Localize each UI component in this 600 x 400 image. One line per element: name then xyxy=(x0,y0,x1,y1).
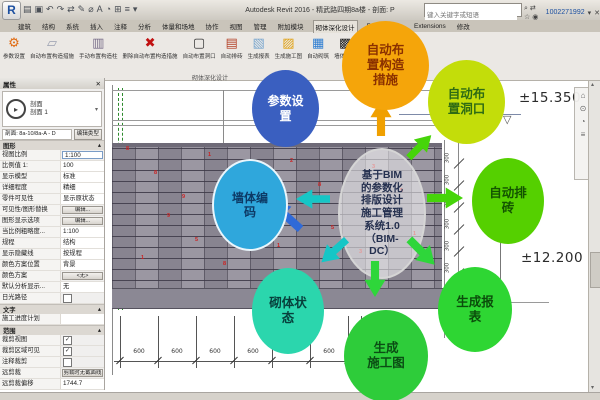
bubble-label: 自动布 置构造 措施 xyxy=(367,43,405,88)
brick-number: 9 xyxy=(182,194,185,200)
tab-视图[interactable]: 视图 xyxy=(228,20,245,32)
steering-wheel-icon[interactable]: ⊙ xyxy=(580,104,587,113)
thin-lines-icon[interactable]: ≡ xyxy=(125,2,130,17)
dimension-value[interactable]: 600 xyxy=(158,348,196,355)
ribbon-button-自动排砖[interactable]: ▤自动排砖 xyxy=(220,34,244,61)
tab-建筑[interactable]: 建筑 xyxy=(16,20,33,32)
property-label: 裁剪区域可见 xyxy=(0,346,61,356)
property-label: 远剪裁 xyxy=(0,368,61,378)
tab-协作[interactable]: 协作 xyxy=(204,20,221,32)
bubble-label: 自动排 砖 xyxy=(489,186,527,216)
ribbon-button-label: 生成施工图 xyxy=(275,52,303,60)
dimension-value[interactable]: 600 xyxy=(234,348,272,355)
brick-number: 9 xyxy=(167,213,170,219)
bubble-wall-coding: 墙体编 码 xyxy=(212,159,288,251)
property-row-远剪裁偏移: 远剪裁偏移1744.7 xyxy=(0,379,104,390)
delete-icon: ✖ xyxy=(145,35,156,51)
dimension-value[interactable]: 600 xyxy=(310,348,348,355)
ribbon-button-label: 自动布置洞口 xyxy=(183,52,216,60)
brick-number: 1 xyxy=(208,152,211,158)
ribbon-button-生成施工图[interactable]: ▨生成施工图 xyxy=(274,34,304,61)
revit-window: R ▤▣↶↷⇄✎⌀A◔⊞≡▾ Autodesk Revit 2016 - 精武路… xyxy=(0,0,600,400)
dimension-value[interactable]: 600 xyxy=(196,348,234,355)
hub-label: 基于BIM 的参数化 排版设计 施工管理 系统1.0 （BIM- DC） xyxy=(361,169,403,259)
property-row-规程: 规程结构 xyxy=(0,238,104,249)
chevron-down-icon[interactable]: ▾ xyxy=(95,106,98,113)
ribbon-button-自动砌筑[interactable]: ▦自动砌筑 xyxy=(306,34,330,61)
element-filter-dropdown[interactable]: 剖面: 8a-10/8a-A - D xyxy=(2,129,72,140)
title-bar: R ▤▣↶↷⇄✎⌀A◔⊞≡▾ Autodesk Revit 2016 - 精武路… xyxy=(0,0,600,21)
drawing-icon: ▨ xyxy=(282,35,294,51)
revit-logo-icon[interactable]: R xyxy=(2,1,21,20)
property-value[interactable] xyxy=(63,358,72,367)
titlebar-tools: ⌕ ⇄ ☆ ◉ xyxy=(524,4,543,21)
report-icon: ▧ xyxy=(252,35,264,51)
spot-elevation-icon: ▽ xyxy=(503,113,511,126)
type-name: 剖面 1 xyxy=(30,109,48,117)
property-label: 当比例粗略度... xyxy=(0,227,61,237)
wall-edge-line xyxy=(223,90,224,143)
section-symbol-icon: ▸ xyxy=(6,99,26,119)
properties-section-文字[interactable]: 文字▴ xyxy=(0,304,104,314)
column-icon: ▥ xyxy=(92,35,104,51)
menu-icon[interactable]: ≡ xyxy=(581,130,586,139)
ribbon-tabs: 建筑结构系统插入注释分析体量和场地协作视图管理附加模块砌体深化设计Fuzor P… xyxy=(0,20,600,32)
property-label: 远剪裁偏移 xyxy=(0,379,61,389)
property-value[interactable]: 编辑... xyxy=(62,206,103,214)
property-row-当比例粗略度...: 当比例粗略度...1:100 xyxy=(0,227,104,238)
property-label: 日光路径 xyxy=(0,293,61,303)
bubble-generate-shop-drawings: 生成 施工图 xyxy=(344,310,428,400)
save-icon[interactable]: ▣ xyxy=(35,2,44,17)
ribbon-button-label: 手动布置构造柱 xyxy=(79,52,118,60)
property-row-日光路径: 日光路径 xyxy=(0,293,104,304)
property-label: 默认分析显示... xyxy=(0,282,61,292)
brick-number: 5 xyxy=(331,225,334,231)
property-label: 规程 xyxy=(0,238,61,248)
dimension-value[interactable]: 300 xyxy=(444,241,450,252)
property-label: 施工进度计划 xyxy=(0,314,61,324)
ribbon-button-label: 自动砌筑 xyxy=(307,52,329,60)
property-row-零件可见性: 零件可见性显示原状态 xyxy=(0,194,104,205)
property-value[interactable]: 100 xyxy=(61,161,104,171)
property-row-显示隐藏线: 显示隐藏线按规程 xyxy=(0,249,104,260)
property-row-可见性/图形替换: 可见性/图形替换编辑... xyxy=(0,205,104,216)
property-value[interactable]: 精细 xyxy=(61,183,104,193)
bubble-label: 参数设 置 xyxy=(267,94,303,123)
tab-Extensions[interactable]: Extensions xyxy=(412,22,448,31)
tab-体量和场地[interactable]: 体量和场地 xyxy=(160,20,197,32)
type-category: 剖面 xyxy=(30,101,48,109)
brick-number: 8 xyxy=(154,170,157,176)
tab-管理[interactable]: 管理 xyxy=(252,20,269,32)
opening-icon: ▢ xyxy=(193,35,205,51)
property-value[interactable] xyxy=(61,314,104,324)
brick-number: 1 xyxy=(277,243,280,249)
edit-type-button[interactable]: 编辑类型 xyxy=(74,129,102,140)
ribbon-button-参数设置[interactable]: ⚙参数设置 xyxy=(2,34,26,61)
ribbon-button-生成报表[interactable]: ▧生成报表 xyxy=(247,34,271,61)
masonry-icon: ▦ xyxy=(312,35,324,51)
property-value[interactable]: ✓ xyxy=(63,336,72,345)
tab-注释[interactable]: 注释 xyxy=(112,20,129,32)
undo-icon[interactable]: ↶ xyxy=(46,2,54,17)
scroll-down-icon[interactable]: ▾ xyxy=(591,384,594,391)
bubble-label: 生成 施工图 xyxy=(367,341,405,371)
property-row-图形显示选项: 图形显示选项编辑... xyxy=(0,216,104,227)
bubble-label: 砌体状 态 xyxy=(269,296,307,326)
print-icon[interactable]: ⇄ xyxy=(67,2,75,17)
property-value[interactable]: 1:100 xyxy=(62,151,103,159)
property-label: 注释裁剪 xyxy=(0,357,61,367)
brick-number: 8 xyxy=(318,182,321,188)
property-label: 详细程度 xyxy=(0,183,61,193)
brick-number: 8 xyxy=(223,261,226,267)
elevation-annotation[interactable]: ±12.200 xyxy=(521,250,583,266)
bubble-label: 自动布 置洞口 xyxy=(448,87,486,117)
property-row-默认分析显示...: 默认分析显示...无 xyxy=(0,282,104,293)
property-value[interactable]: 按规程 xyxy=(61,249,104,259)
quick-access-toolbar: ▤▣↶↷⇄✎⌀A◔⊞≡▾ xyxy=(23,2,137,17)
bubble-auto-construction-measures: 自动布 置构造 措施 xyxy=(342,21,429,110)
gear-icon: ⚙ xyxy=(8,35,20,51)
customize-icon[interactable]: ▾ xyxy=(133,2,138,17)
dim-tick xyxy=(454,180,465,191)
ribbon-button-label: 参数设置 xyxy=(3,52,25,60)
bubble-generate-reports: 生成报 表 xyxy=(438,267,512,352)
tab-结构[interactable]: 结构 xyxy=(40,20,57,32)
dimension-value[interactable]: 300 xyxy=(444,219,450,230)
brick-number: 5 xyxy=(195,237,198,243)
bubble-auto-brick-layout: 自动排 砖 xyxy=(472,158,544,244)
property-label: 零件可见性 xyxy=(0,194,61,204)
vertical-scrollbar[interactable]: ▴ ▾ xyxy=(588,80,600,392)
property-label: 图形显示选项 xyxy=(0,216,61,226)
account-id[interactable]: 1002271992 xyxy=(546,9,585,16)
property-value[interactable]: 1:100 xyxy=(61,227,104,237)
ribbon-button-label: 删除自动布置构造措施 xyxy=(123,52,178,60)
modify-icon[interactable]: ✎ xyxy=(78,2,86,17)
bubble-masonry-status: 砌体状 态 xyxy=(252,268,324,354)
dimension-value[interactable]: 600 xyxy=(120,348,158,355)
bubble-auto-openings: 自动布 置洞口 xyxy=(428,60,505,144)
property-value[interactable]: 剪裁时无截面线 xyxy=(62,369,103,377)
dimension-value[interactable]: 300 xyxy=(444,175,450,186)
properties-panel: 属性 ✕ ▸ 剖面 剖面 1 ▾ 剖面: 8a-10/8a-A - D 编辑类型… xyxy=(0,78,105,390)
ribbon-button-自动布置构造措施[interactable]: ▱自动布置构造措施 xyxy=(29,34,75,61)
property-value[interactable]: <无> xyxy=(62,272,103,280)
bubble-label: 生成报 表 xyxy=(456,295,494,325)
ribbon-button-label: 自动排砖 xyxy=(221,52,243,60)
property-row-比例值 1:: 比例值 1:100 xyxy=(0,161,104,172)
section-icon[interactable]: ⊞ xyxy=(114,2,122,17)
dim-tick xyxy=(454,224,465,235)
property-label: 显示隐藏线 xyxy=(0,249,61,259)
window-title: Autodesk Revit 2016 - 精武路四期8a楼 - 剖面: P xyxy=(205,5,435,15)
property-row-裁剪视图: 裁剪视图✓ xyxy=(0,335,104,346)
property-row-裁剪区域可见: 裁剪区域可见✓ xyxy=(0,346,104,357)
properties-header: 属性 ✕ xyxy=(0,78,104,89)
property-row-视图比例: 视图比例1:100 xyxy=(0,150,104,161)
properties-section-范围[interactable]: 范围▴ xyxy=(0,325,104,335)
dim-tick xyxy=(454,246,465,257)
properties-close-icon[interactable]: ✕ xyxy=(96,80,101,88)
ribbon-button-label: 自动布置构造措施 xyxy=(30,52,74,60)
brick-number: 8 xyxy=(126,146,129,152)
ribbon-button-自动布置洞口[interactable]: ▢自动布置洞口 xyxy=(182,34,217,61)
properties-section-图形[interactable]: 图形▴ xyxy=(0,140,104,150)
tab-插入[interactable]: 插入 xyxy=(88,20,105,32)
text-icon[interactable]: A xyxy=(97,2,103,17)
property-value[interactable]: 结构 xyxy=(61,238,104,248)
close-icon[interactable]: ✕ xyxy=(594,9,600,17)
3d-view-icon[interactable]: ◔ xyxy=(106,2,111,17)
property-label: 显示模型 xyxy=(0,172,61,182)
type-selector[interactable]: ▸ 剖面 剖面 1 ▾ xyxy=(2,91,102,127)
property-value[interactable]: 编辑... xyxy=(62,217,103,225)
property-label: 颜色方案 xyxy=(0,271,61,281)
property-label: 裁剪视图 xyxy=(0,335,61,345)
account-dropdown-icon[interactable]: ▾ xyxy=(588,9,592,17)
property-row-颜色方案位置: 颜色方案位置背景 xyxy=(0,260,104,271)
properties-title: 属性 xyxy=(3,79,16,89)
ribbon-button-label: 生成报表 xyxy=(248,52,270,60)
property-value[interactable]: ✓ xyxy=(63,347,72,356)
elevation-annotation[interactable]: ±15.350 xyxy=(519,90,581,106)
ribbon-button-删除自动布置构造措施[interactable]: ✖删除自动布置构造措施 xyxy=(122,34,179,61)
tab-砌体深化设计[interactable]: 砌体深化设计 xyxy=(313,20,358,33)
property-row-颜色方案: 颜色方案<无> xyxy=(0,271,104,282)
property-value[interactable]: 无 xyxy=(61,282,104,292)
property-row-显示模型: 显示模型标准 xyxy=(0,172,104,183)
ribbon-buttons: ⚙参数设置▱自动布置构造措施▥手动布置构造柱✖删除自动布置构造措施▢自动布置洞口… xyxy=(2,34,357,61)
redo-icon[interactable]: ↷ xyxy=(57,2,65,17)
property-row-详细程度: 详细程度精细 xyxy=(0,183,104,194)
tab-附加模块[interactable]: 附加模块 xyxy=(276,20,306,32)
property-label: 比例值 1: xyxy=(0,161,61,171)
help-search[interactable] xyxy=(424,3,522,17)
bubble-label: 墙体编 码 xyxy=(232,191,268,220)
property-row-施工进度计划: 施工进度计划 xyxy=(0,314,104,325)
dimension-value[interactable]: 300 xyxy=(444,153,450,164)
sync-icon[interactable]: ⇄ xyxy=(530,5,536,12)
zoom-icon[interactable]: ◔ xyxy=(581,117,586,126)
dim-tick xyxy=(454,158,465,169)
brick-number: 1 xyxy=(141,255,144,261)
scroll-up-icon[interactable]: ▴ xyxy=(591,81,594,88)
search-input[interactable] xyxy=(425,11,517,21)
tab-修改[interactable]: 修改 xyxy=(455,20,472,32)
properties-grid: 图形▴视图比例1:100比例值 1:100显示模型标准详细程度精细零件可见性显示… xyxy=(0,140,104,390)
window-bottom-edge xyxy=(0,392,600,400)
brick-icon: ▤ xyxy=(225,35,237,51)
dimension-value[interactable]: 300 xyxy=(444,263,450,274)
ribbon-button-手动布置构造柱[interactable]: ▥手动布置构造柱 xyxy=(78,34,119,61)
scrollbar-thumb[interactable] xyxy=(590,252,600,288)
property-label: 视图比例 xyxy=(0,150,61,160)
tab-系统[interactable]: 系统 xyxy=(64,20,81,32)
property-label: 可见性/图形替换 xyxy=(0,205,61,215)
property-value[interactable]: 显示原状态 xyxy=(61,194,104,204)
brick-number: 2 xyxy=(290,158,293,164)
property-value[interactable]: 1744.7 xyxy=(61,379,104,389)
property-row-远剪裁: 远剪裁剪裁时无截面线 xyxy=(0,368,104,379)
property-value[interactable] xyxy=(63,294,72,303)
panel-icon: ▱ xyxy=(47,35,57,51)
property-value[interactable]: 背景 xyxy=(61,260,104,270)
tab-分析[interactable]: 分析 xyxy=(136,20,153,32)
property-value[interactable]: 标准 xyxy=(61,172,104,182)
measure-icon[interactable]: ⌀ xyxy=(88,2,93,17)
home-icon[interactable]: ⌂ xyxy=(581,91,586,100)
property-label: 颜色方案位置 xyxy=(0,260,61,270)
account-area: ⌕ ⇄ ☆ ◉ 1002271992 ▾ ✕ xyxy=(524,4,600,21)
property-row-注释裁剪: 注释裁剪 xyxy=(0,357,104,368)
bubble-parameter-settings: 参数设 置 xyxy=(252,70,319,147)
dim-tick xyxy=(454,202,465,213)
open-icon[interactable]: ▤ xyxy=(23,2,32,17)
bubble-bim-system-hub: 基于BIM 的参数化 排版设计 施工管理 系统1.0 （BIM- DC） xyxy=(338,148,426,279)
